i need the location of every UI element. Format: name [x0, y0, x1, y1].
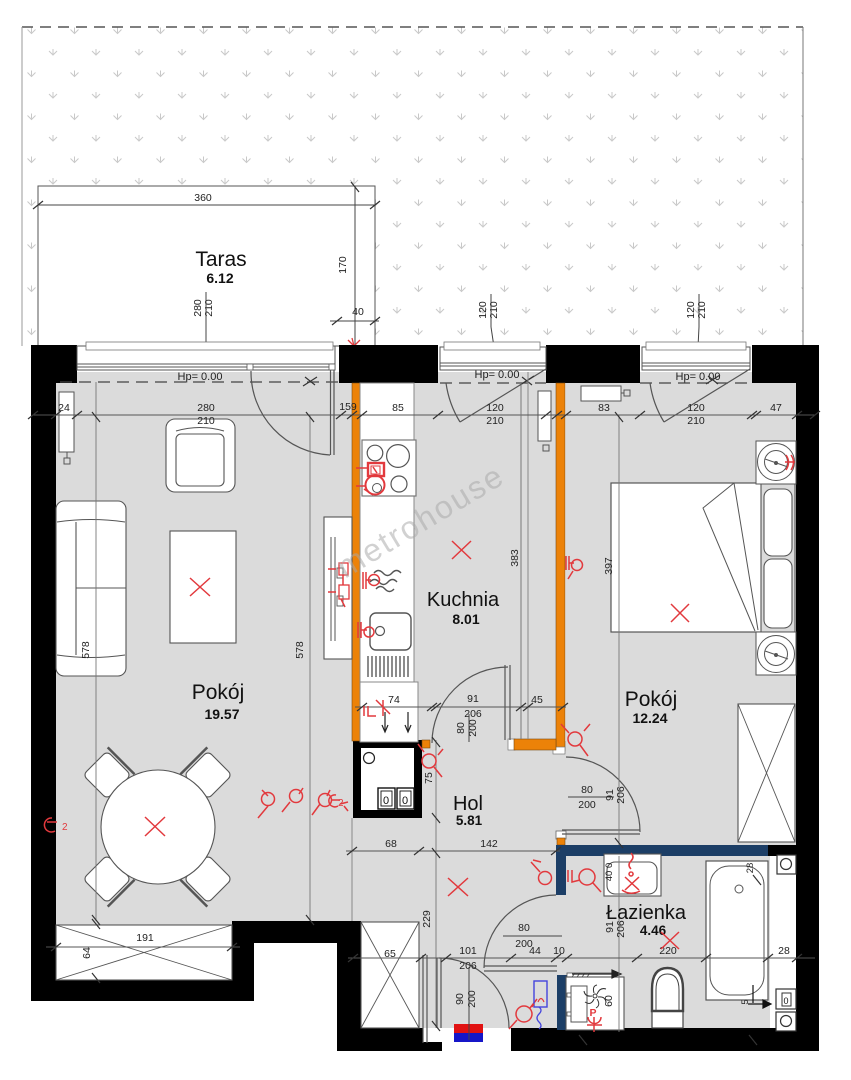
- svg-text:383: 383: [509, 549, 521, 567]
- svg-text:578: 578: [80, 641, 92, 659]
- svg-text:45: 45: [531, 694, 543, 706]
- svg-text:24: 24: [58, 402, 70, 414]
- svg-text:210: 210: [488, 301, 500, 319]
- svg-text:142: 142: [480, 838, 498, 850]
- svg-text:Łazienka: Łazienka: [606, 902, 687, 924]
- svg-text:0: 0: [783, 996, 788, 1006]
- svg-text:19.57: 19.57: [204, 706, 239, 722]
- svg-text:210: 210: [696, 301, 708, 319]
- svg-text:200: 200: [515, 938, 533, 950]
- svg-text:60: 60: [603, 995, 615, 1007]
- svg-text:85: 85: [392, 402, 404, 414]
- svg-text:65: 65: [384, 948, 396, 960]
- svg-text:80: 80: [518, 922, 530, 934]
- svg-text:5: 5: [740, 999, 751, 1004]
- svg-text:120: 120: [486, 402, 504, 414]
- svg-text:578: 578: [294, 641, 306, 659]
- svg-text:5.81: 5.81: [456, 813, 483, 828]
- svg-text:200: 200: [578, 799, 596, 811]
- svg-text:90: 90: [454, 993, 466, 1005]
- svg-text:360: 360: [194, 192, 212, 204]
- svg-text:Pokój: Pokój: [192, 681, 245, 704]
- svg-text:2: 2: [338, 798, 344, 809]
- svg-text:83: 83: [598, 402, 610, 414]
- svg-text:Pokój: Pokój: [625, 688, 678, 711]
- svg-text:75: 75: [423, 772, 435, 784]
- svg-text:80: 80: [455, 722, 467, 734]
- svg-text:Taras: Taras: [195, 248, 246, 271]
- svg-text:210: 210: [687, 415, 705, 427]
- svg-text:12.24: 12.24: [632, 710, 667, 726]
- svg-text:8.01: 8.01: [452, 611, 479, 627]
- svg-text:280: 280: [197, 402, 215, 414]
- svg-text:0: 0: [402, 795, 408, 807]
- svg-text:40 0: 40 0: [604, 863, 615, 882]
- svg-text:2: 2: [62, 822, 68, 833]
- svg-text:64: 64: [81, 947, 93, 959]
- svg-text:Kuchnia: Kuchnia: [427, 589, 500, 611]
- svg-text:6.12: 6.12: [206, 270, 233, 286]
- svg-text:200: 200: [466, 990, 478, 1008]
- svg-text:P: P: [589, 1007, 596, 1019]
- svg-text:159: 159: [339, 401, 357, 413]
- svg-text:206: 206: [615, 786, 627, 804]
- svg-text:91: 91: [467, 693, 479, 705]
- svg-text:170: 170: [337, 256, 349, 274]
- svg-text:101: 101: [459, 945, 477, 957]
- svg-text:191: 191: [136, 932, 154, 944]
- svg-text:47: 47: [770, 402, 782, 414]
- svg-text:210: 210: [203, 299, 215, 317]
- svg-text:28: 28: [778, 945, 790, 957]
- svg-text:80: 80: [581, 784, 593, 796]
- svg-text:Hp= 0.00: Hp= 0.00: [475, 369, 520, 381]
- svg-text:120: 120: [687, 402, 705, 414]
- svg-text:68: 68: [385, 838, 397, 850]
- svg-text:206: 206: [459, 960, 477, 972]
- svg-text:397: 397: [603, 557, 615, 575]
- svg-text:4.46: 4.46: [640, 923, 667, 938]
- svg-text:210: 210: [486, 415, 504, 427]
- svg-text:220: 220: [659, 945, 677, 957]
- svg-text:229: 229: [421, 910, 433, 928]
- svg-text:40: 40: [352, 306, 364, 318]
- svg-text:0: 0: [383, 795, 389, 807]
- svg-text:28: 28: [745, 863, 756, 874]
- svg-text:Hol: Hol: [453, 793, 483, 815]
- svg-text:10: 10: [553, 945, 565, 957]
- svg-text:74: 74: [388, 694, 400, 706]
- svg-text:206: 206: [464, 708, 482, 720]
- svg-text:Hp= 0.00: Hp= 0.00: [178, 371, 223, 383]
- svg-text:210: 210: [197, 415, 215, 427]
